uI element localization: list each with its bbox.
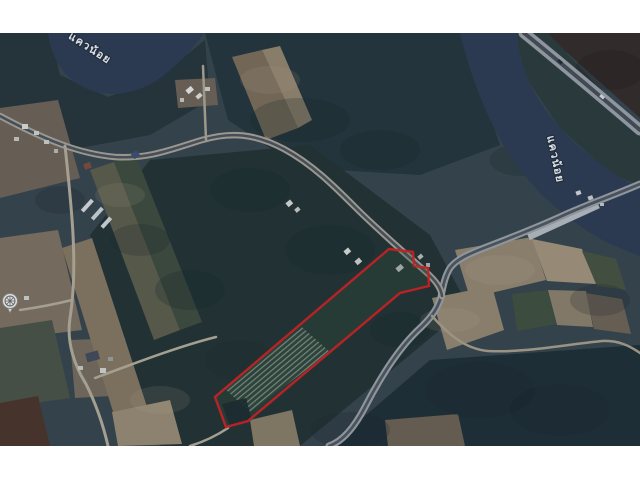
tone-overlay (0, 33, 640, 446)
satellite-map-image: แควน้อย แควน้อย (0, 0, 640, 480)
screenshot-frame: แควน้อย แควน้อย (0, 0, 640, 480)
